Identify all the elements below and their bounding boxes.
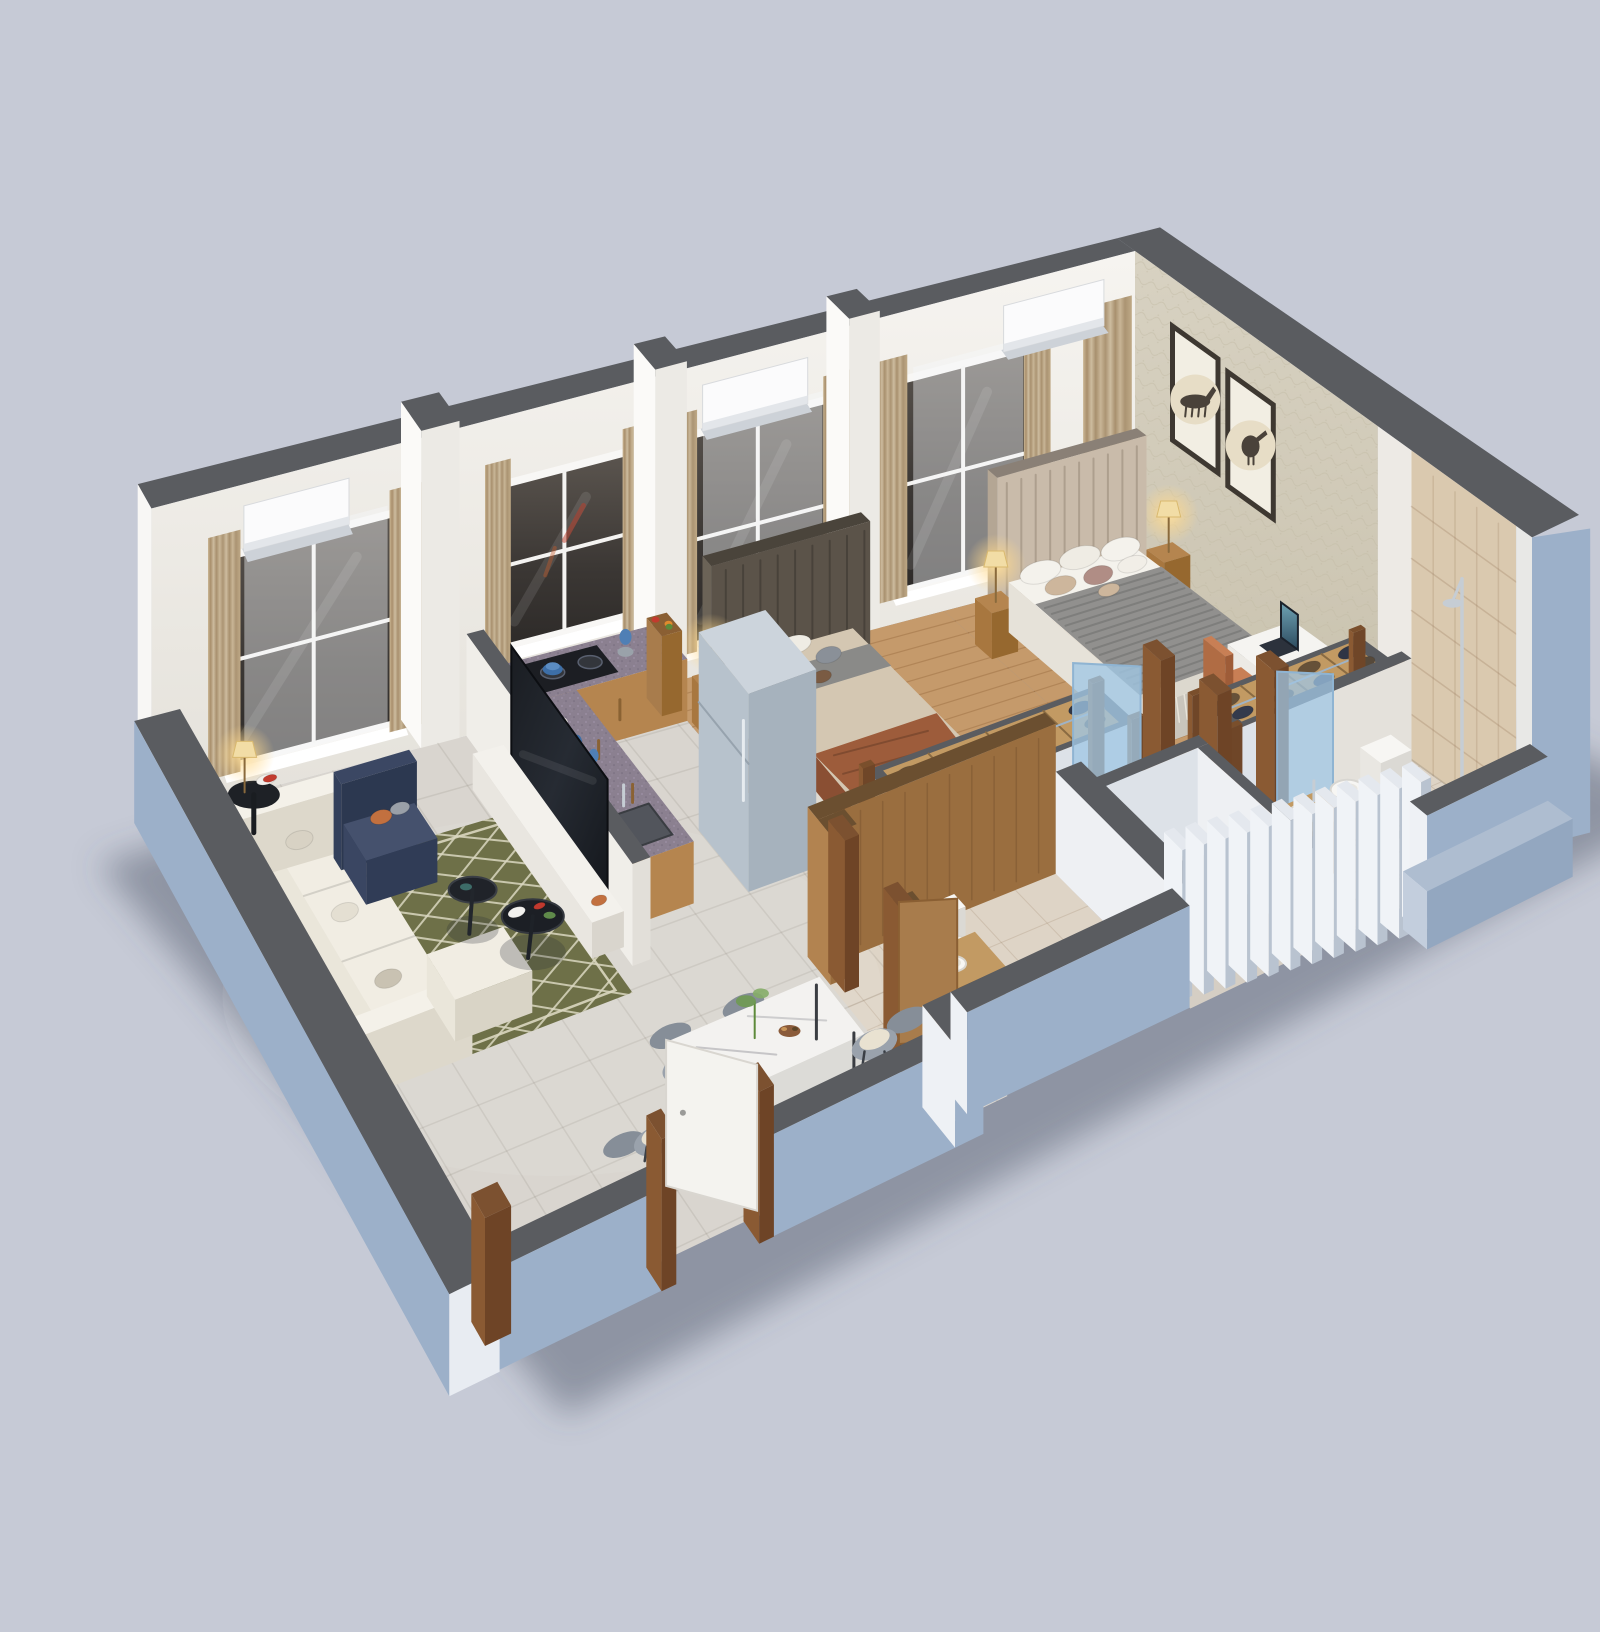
refrigerator xyxy=(699,610,817,892)
apartment-render xyxy=(40,16,1600,1616)
floor-plan-figure xyxy=(40,16,1600,1616)
floor-plan-canvas xyxy=(40,16,1600,1616)
